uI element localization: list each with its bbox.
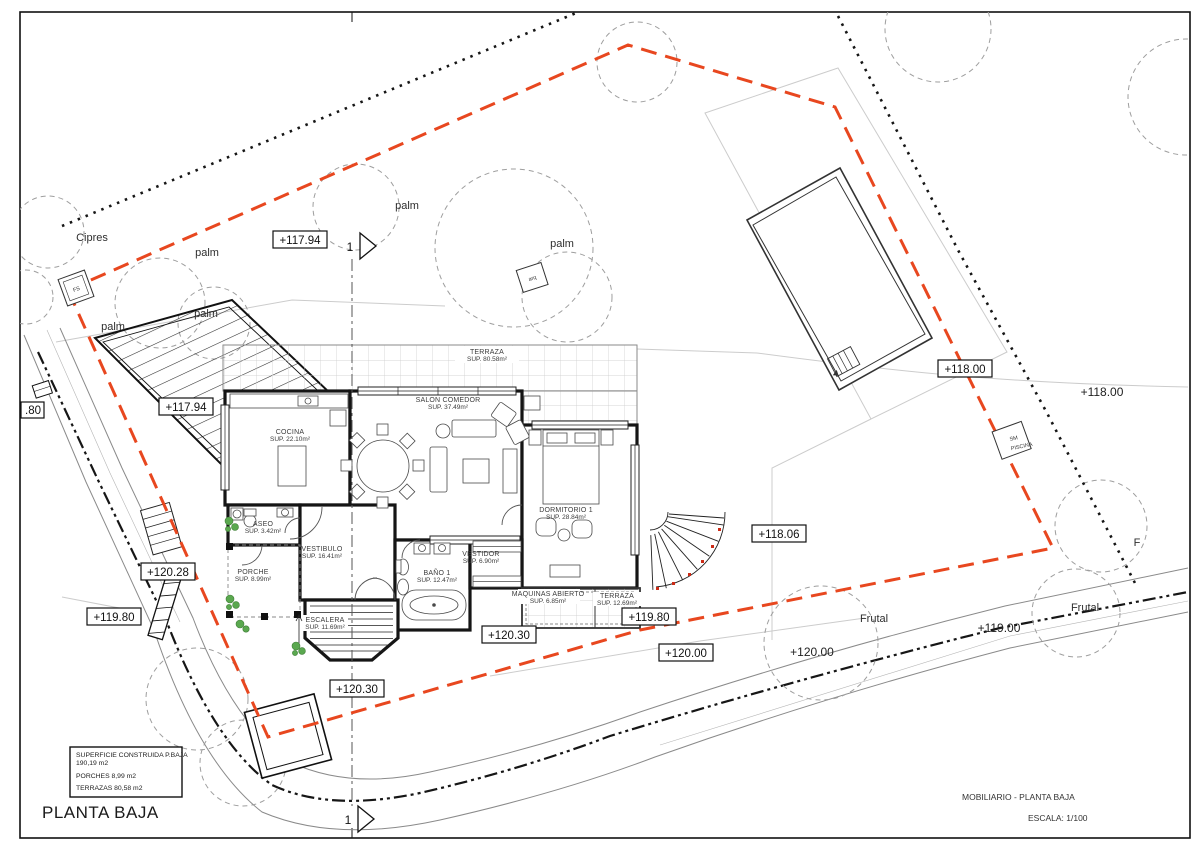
- palm-label: palm: [194, 308, 218, 320]
- room-label-terraza: TERRAZA: [470, 349, 504, 356]
- svg-text:SUP. 16.41m²: SUP. 16.41m²: [302, 553, 343, 560]
- palm-label: palm: [101, 321, 125, 333]
- svg-text:SUP. 80.58m²: SUP. 80.58m²: [467, 356, 508, 363]
- room-label-vestibulo: VESTIBULO: [301, 546, 342, 553]
- frutal-label: Frutal: [860, 613, 888, 625]
- elevation-label: +120.30: [336, 684, 378, 696]
- elevation-label: +118.06: [758, 529, 799, 541]
- elevation-label: +118.00: [944, 364, 985, 376]
- floor-plan-sheet: FS arq SM PISCINA 1 1 TERRAZA: [0, 0, 1200, 849]
- terrace-deck: [223, 345, 637, 391]
- elevation-label: +117.94: [165, 402, 207, 414]
- palm-label: palm: [195, 247, 219, 259]
- room-label-porche: PORCHE: [237, 569, 268, 576]
- legend-line1: SUPERFICIE CONSTRUIDA P.BAJA: [76, 752, 188, 759]
- room-label-maquinas: MAQUINAS ABIERTO: [512, 591, 585, 598]
- svg-text:SUP. 12.47m²: SUP. 12.47m²: [417, 577, 458, 584]
- elevation-label: +119.80: [93, 612, 134, 624]
- elevation-label: +119.80: [628, 612, 669, 624]
- scale-label: ESCALA: 1/100: [1028, 813, 1088, 823]
- svg-text:SUP. 3.42m²: SUP. 3.42m²: [245, 528, 282, 535]
- svg-text:SUP. 22.10m²: SUP. 22.10m²: [270, 436, 311, 443]
- room-label-bano: BAÑO 1: [424, 568, 451, 577]
- room-label-salon: SALON COMEDOR: [416, 397, 481, 404]
- elevation-label-clipped: .80: [25, 405, 41, 417]
- svg-text:SUP. 6.90m²: SUP. 6.90m²: [463, 558, 500, 565]
- palm-label: palm: [395, 200, 419, 212]
- section-number: 1: [347, 240, 354, 254]
- legend-line1-value: 190,19 m2: [76, 760, 108, 767]
- room-label-dormitorio: DORMITORIO 1: [539, 507, 593, 514]
- legend-terrazas: TERRAZAS 80,58 m2: [76, 785, 143, 792]
- svg-text:SUP. 11.69m²: SUP. 11.69m²: [305, 624, 345, 631]
- sheet-title: MOBILIARIO - PLANTA BAJA: [962, 792, 1075, 802]
- elevation-label: +120.28: [147, 567, 189, 579]
- svg-text:SUP. 37.49m²: SUP. 37.49m²: [428, 404, 469, 411]
- section-number: 1: [345, 813, 352, 827]
- svg-text:SUP. 8.99m²: SUP. 8.99m²: [235, 576, 272, 583]
- elevation-label: +120.00: [665, 648, 707, 660]
- legend: SUPERFICIE CONSTRUIDA P.BAJA 190,19 m2 P…: [70, 747, 188, 797]
- svg-text:SUP. 6.85m²: SUP. 6.85m²: [530, 598, 567, 605]
- frutal-label-clipped: F: [1134, 537, 1141, 549]
- elevation-label: +119.00: [978, 621, 1021, 635]
- frutal-label: Frutal: [1071, 602, 1099, 614]
- room-label-cocina: COCINA: [276, 429, 305, 436]
- svg-text:SUP. 28.84m²: SUP. 28.84m²: [546, 514, 587, 521]
- room-label-aseo: ASEO: [253, 521, 274, 528]
- floor-plan-canvas: FS arq SM PISCINA 1 1 TERRAZA: [0, 0, 1200, 849]
- legend-porches: PORCHES 8,99 m2: [76, 773, 136, 780]
- palm-label: palm: [550, 238, 574, 250]
- elevation-label: +117.94: [279, 235, 321, 247]
- cipres-label: Cipres: [76, 232, 108, 244]
- svg-text:SUP. 12.69m²: SUP. 12.69m²: [597, 600, 638, 607]
- room-label-terraza2: TERRAZA: [600, 593, 634, 600]
- elevation-label: +118.00: [1081, 385, 1124, 399]
- room-label-escalera: ESCALERA: [306, 617, 345, 624]
- room-label-vestidor: VESTIDOR: [462, 551, 499, 558]
- elevation-label: +120.30: [488, 630, 530, 642]
- elevation-label: +120.00: [790, 645, 834, 659]
- plan-title: PLANTA BAJA: [42, 803, 159, 822]
